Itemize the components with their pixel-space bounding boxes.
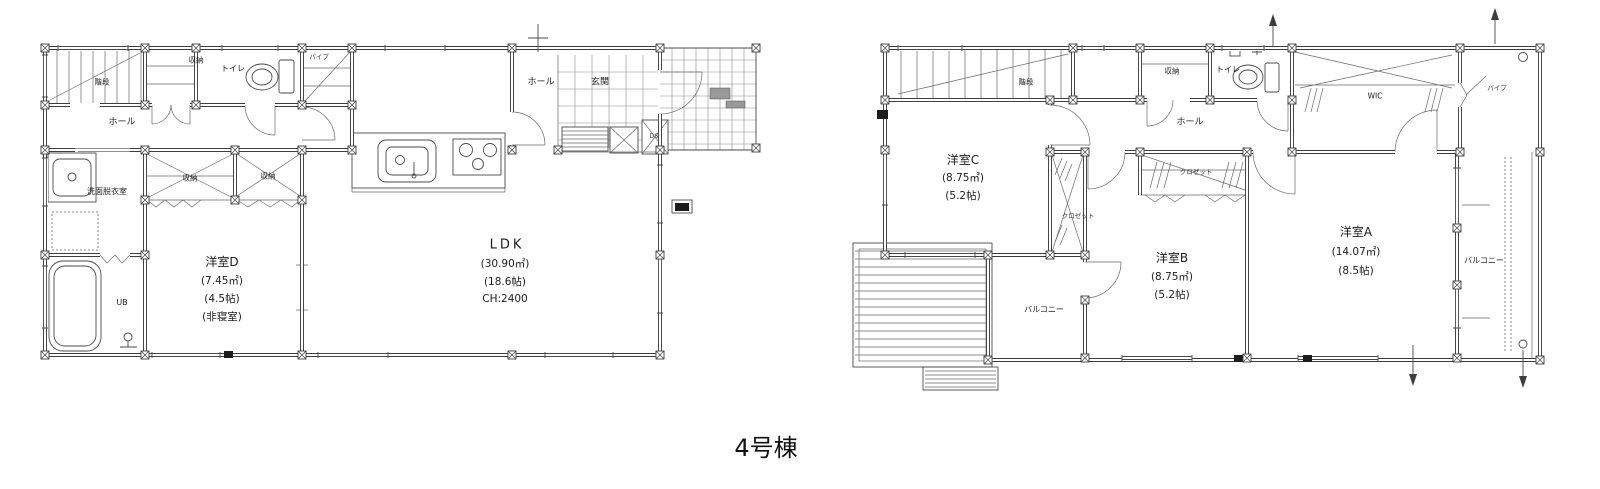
doors-2f-icon <box>1050 100 1437 298</box>
porch-tiles-icon <box>660 48 756 150</box>
room-area-yoshitsu-a: (14.07㎡) <box>1332 247 1381 258</box>
wall-posts-2f-icon <box>881 44 1544 364</box>
room-label-storage-2f: 収納 <box>1165 67 1180 75</box>
walls-1f <box>45 48 660 355</box>
room-name-yoshitsu-c: 洋室C <box>947 154 979 166</box>
room-label-balcony-right: バルコニー <box>1464 257 1504 265</box>
doors-1f-icon <box>75 72 702 310</box>
room-label-toilet-2f: トイレ <box>1216 66 1240 74</box>
room-name-ldk: LDK <box>490 239 525 252</box>
walls-2f <box>885 48 1540 360</box>
stairs-2f-icon <box>898 50 1068 98</box>
room-label-toilet-1f: トイレ <box>221 65 245 73</box>
floorplan-drawing <box>0 0 1600 489</box>
room-label-pipe-2f: パイプ <box>1487 85 1507 92</box>
room-jo-yoshitsu-c: (5.2帖) <box>945 191 980 202</box>
washer-space-icon <box>52 212 98 250</box>
kitchen-icon <box>352 133 505 192</box>
balcony-right-icon <box>1462 53 1532 361</box>
closet-c-detail-icon <box>1052 155 1083 252</box>
room-jo-ldk: (18.6帖) <box>484 277 526 288</box>
room-label-hall-1f: ホール <box>108 119 135 128</box>
room-area-yoshitsu-d: (7.45㎡) <box>201 276 243 287</box>
floorplan-page: 階段 収納 トイレ パイプ ホール ホール 玄関 DS 洗面脱衣室 UB 収納 … <box>0 0 1600 489</box>
closet-b-detail-icon <box>1140 155 1247 202</box>
wall-posts-1f-icon <box>41 44 760 359</box>
room-label-genkan: 玄関 <box>591 79 609 88</box>
room-label-pipe-1f: パイプ <box>309 54 329 61</box>
room-label-washroom: 洗面脱衣室 <box>87 188 127 196</box>
page-title: 4号棟 <box>734 436 797 460</box>
floor1-plan <box>41 24 760 359</box>
room-label-closet-c-2f: クロゼット <box>1062 213 1095 220</box>
room-label-ds: DS <box>649 133 658 140</box>
room-label-closet-b-1f: 収納 <box>261 172 276 180</box>
room-name-yoshitsu-d: 洋室D <box>205 256 238 268</box>
room-area-yoshitsu-c: (8.75㎡) <box>942 173 984 184</box>
room-label-stairs-1f: 階段 <box>95 78 110 86</box>
room-note-yoshitsu-d: (非寝室) <box>202 312 242 323</box>
room-ch-ldk: CH:2400 <box>482 294 528 305</box>
room-label-balcony-left: バルコニー <box>1024 306 1064 314</box>
room-jo-yoshitsu-d: (4.5帖) <box>204 294 239 305</box>
room-label-wic: WIC <box>1368 92 1383 100</box>
room-jo-yoshitsu-a: (8.5帖) <box>1338 266 1373 277</box>
room-name-yoshitsu-a: 洋室A <box>1340 226 1372 238</box>
room-label-storage-top-1f: 収納 <box>189 56 204 64</box>
room-label-hall-entrance: ホール <box>527 79 554 88</box>
room-label-closet-a-1f: 収納 <box>183 174 198 182</box>
roof-deck-icon <box>853 243 998 390</box>
room-jo-yoshitsu-b: (5.2帖) <box>1154 290 1189 301</box>
room-label-hall-2f: ホール <box>1176 119 1203 128</box>
room-name-yoshitsu-b: 洋室B <box>1156 252 1188 264</box>
room-label-stairs-2f: 階段 <box>1019 78 1034 86</box>
room-area-yoshitsu-b: (8.75㎡) <box>1151 272 1193 283</box>
room-label-closet-b-2f: クロゼット <box>1180 169 1213 176</box>
room-label-bath-ub: UB <box>116 299 127 307</box>
wic-detail-icon <box>1295 52 1486 112</box>
toilet-1f-icon <box>246 60 294 93</box>
room-area-ldk: (30.90㎡) <box>481 259 530 270</box>
